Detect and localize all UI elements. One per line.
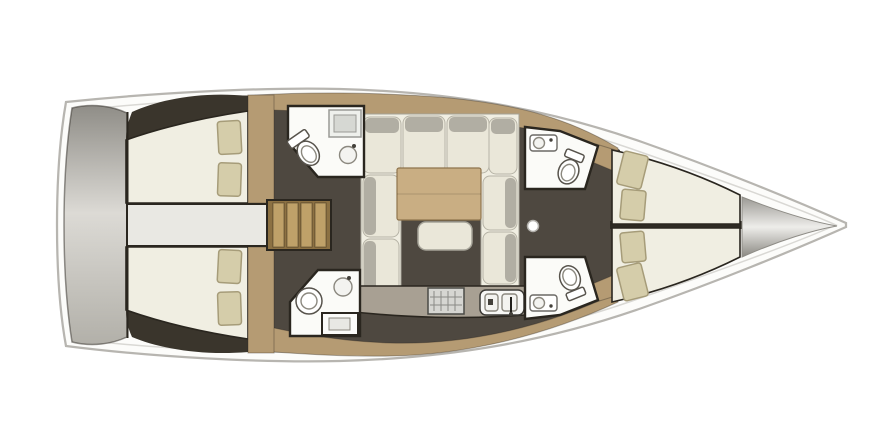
toilet [296,288,322,314]
double-sink [480,290,524,316]
faucet-dot [549,304,552,307]
faucet-dot [347,276,351,280]
washbasin-unit [530,135,557,151]
galley [338,286,538,317]
aft-cabin-starboard [126,95,274,203]
stair-step [287,203,298,247]
cushion-backrest [491,119,515,134]
sink-basin [502,294,517,311]
washbasin [534,298,545,309]
washbasin [340,147,357,164]
pillow [620,189,647,221]
aft-cabin-port [126,247,274,353]
ottoman [418,222,472,250]
cushion-backrest [449,117,487,132]
mast-post [528,221,539,232]
wardrobe-cabinet [248,95,274,203]
stair-step [273,203,284,247]
washbasin [534,138,545,149]
cushion-backrest [505,234,516,282]
yacht-floor-plan-canvas [0,0,890,446]
stair-step [315,203,326,247]
companionway-stairs [267,200,331,250]
pillow [620,231,647,263]
vanity-sink [322,313,358,335]
pillow [217,292,241,326]
stair-step [301,203,312,247]
wardrobe-cabinet [248,247,274,353]
transom-swim-platform [64,106,127,345]
engine-compartment [127,204,267,246]
washbasin [334,278,352,296]
boat-floor-plan [0,0,890,446]
cushion-backrest [505,178,516,228]
stove [428,288,464,314]
faucet-dot [352,144,356,148]
pillow [217,163,241,197]
cushion-backrest [405,117,443,132]
drain [488,299,493,305]
pillow [217,120,242,154]
washbasin-unit [530,295,557,311]
cushion-backrest [364,177,376,235]
faucet-base [509,312,513,316]
cushion-backrest [365,118,399,133]
faucet-dot [549,138,552,141]
shower-cabin [329,110,361,137]
pillow [217,249,242,283]
